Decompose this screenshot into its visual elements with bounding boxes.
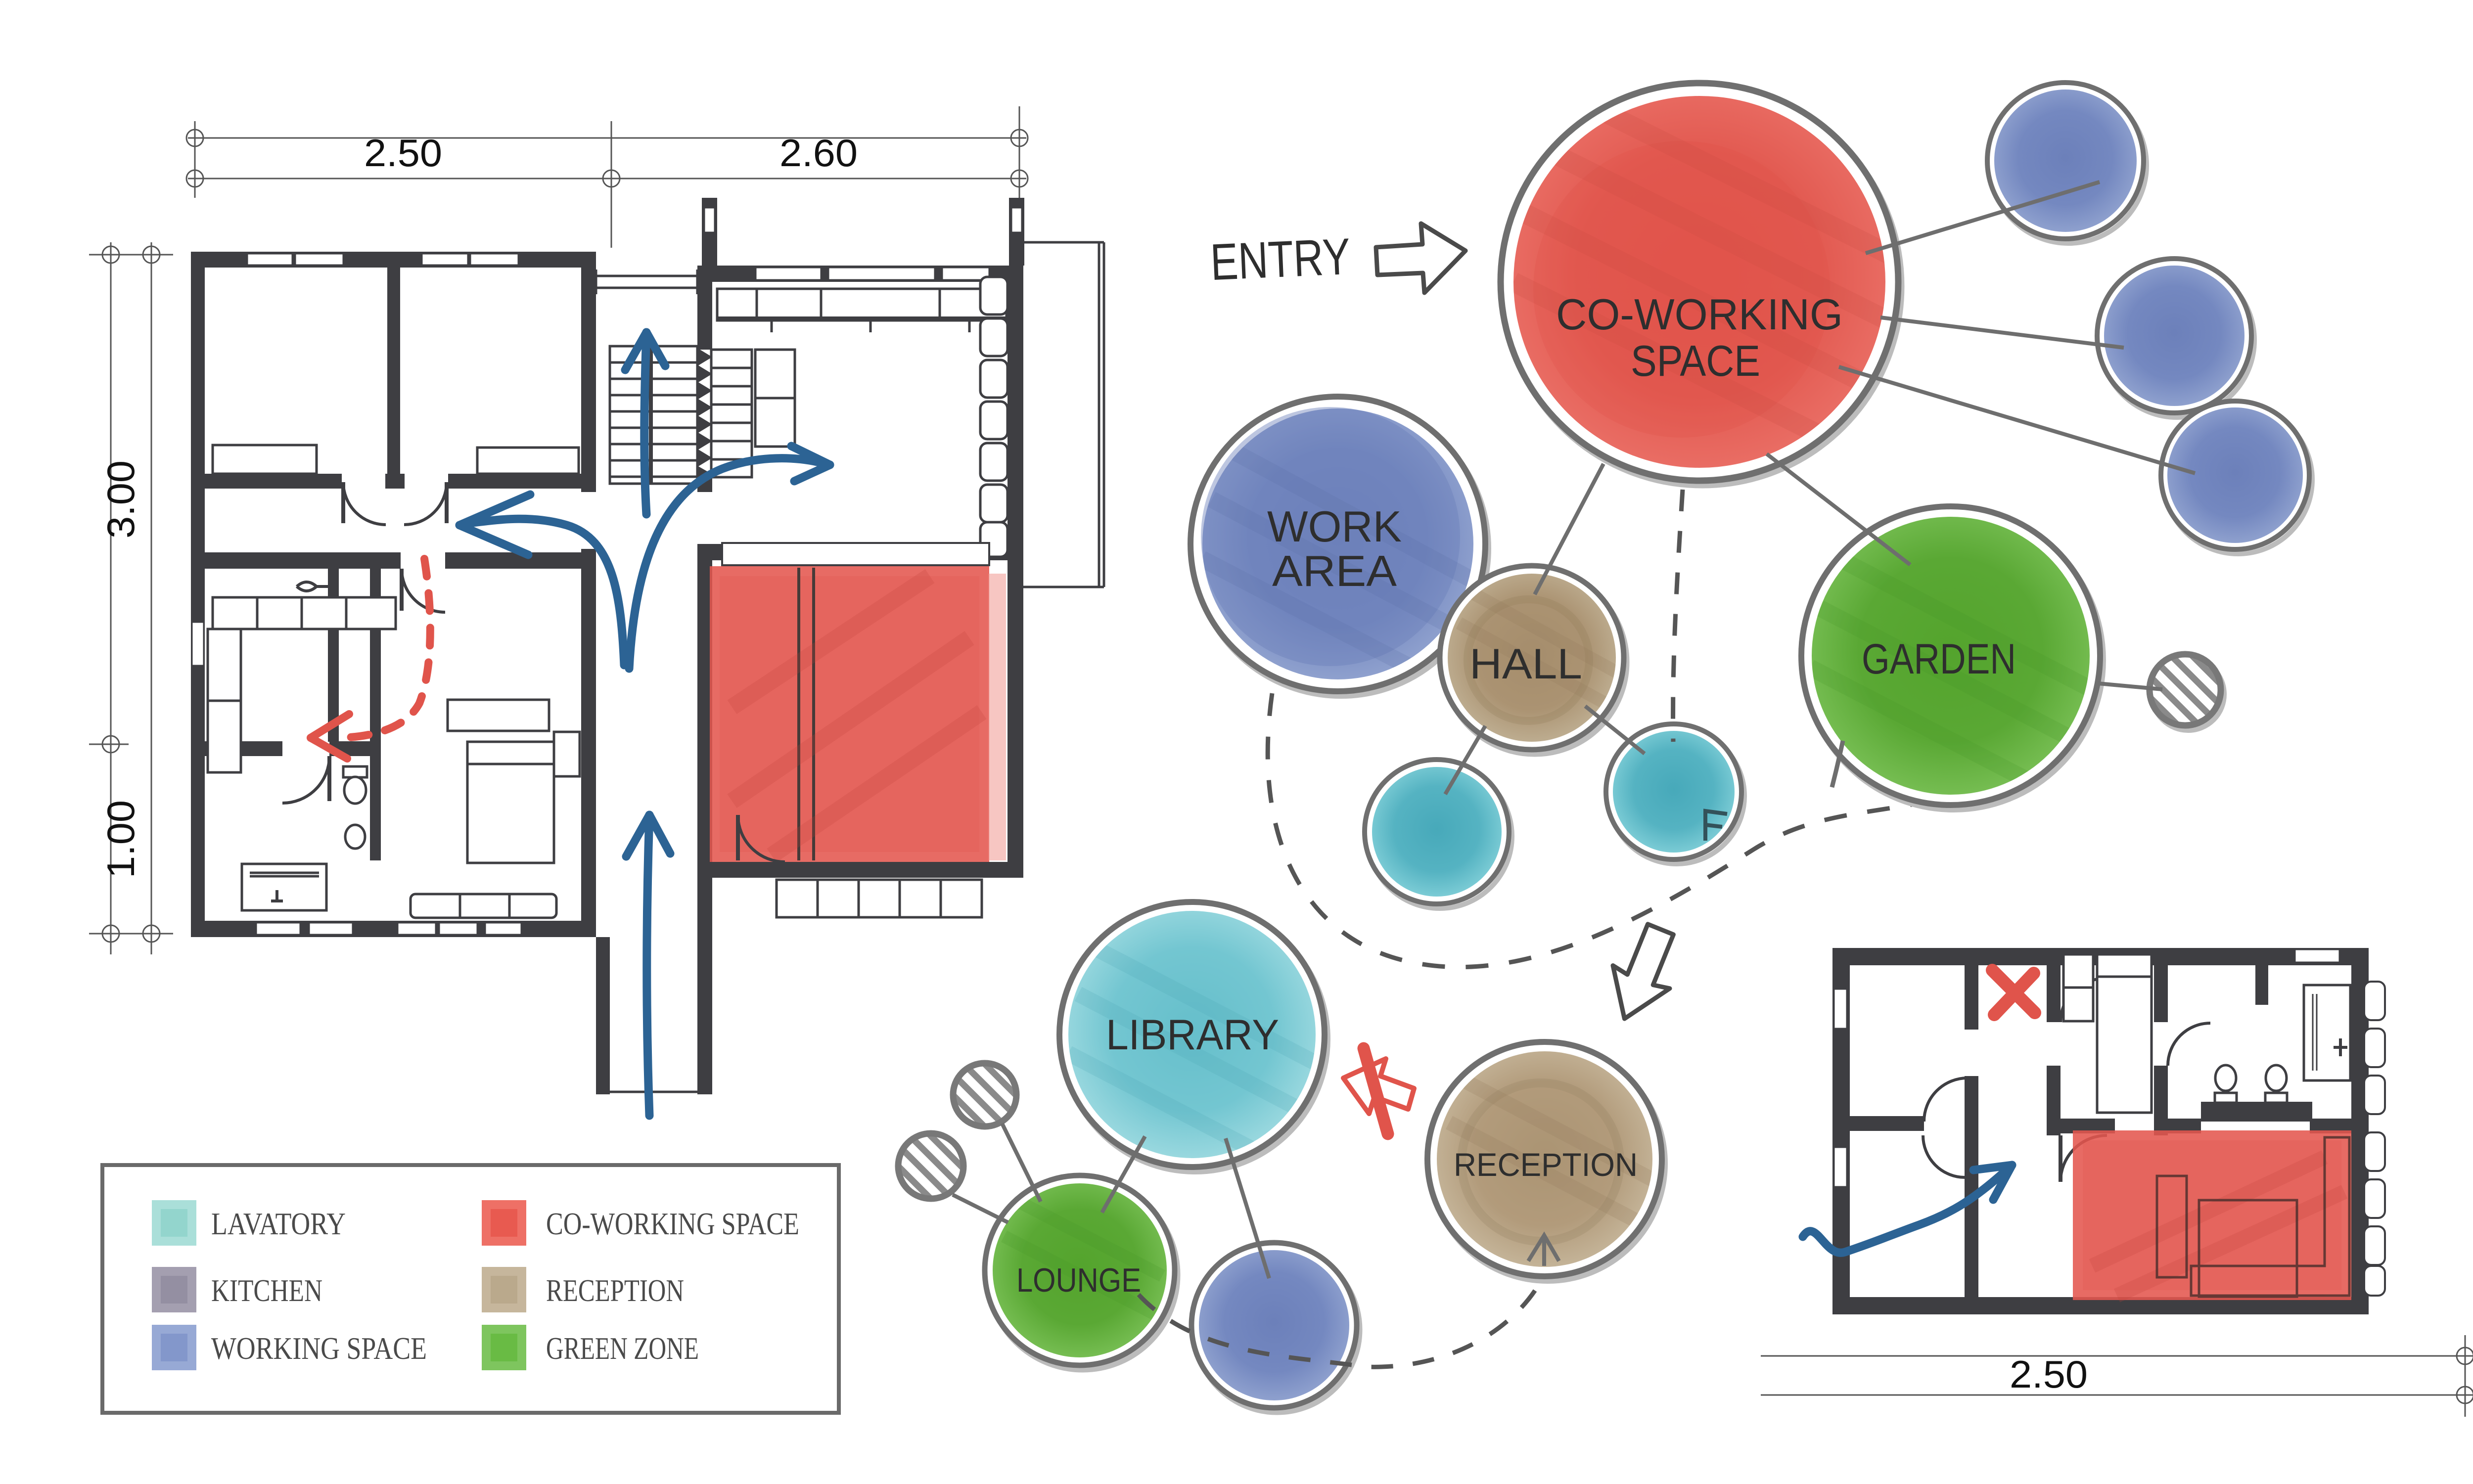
svg-text:CO-WORKING: CO-WORKING: [1556, 290, 1843, 339]
svg-text:3.00: 3.00: [99, 460, 142, 539]
svg-text:ENTRY: ENTRY: [1209, 228, 1352, 291]
svg-text:WORKING SPACE: WORKING SPACE: [211, 1331, 427, 1366]
svg-text:LIBRARY: LIBRARY: [1106, 1011, 1279, 1059]
svg-text:2.50: 2.50: [2010, 1352, 2088, 1396]
svg-text:RECEPTION: RECEPTION: [1454, 1146, 1638, 1183]
svg-text:2.60: 2.60: [779, 131, 858, 175]
svg-text:CO-WORKING SPACE: CO-WORKING SPACE: [546, 1206, 799, 1241]
svg-text:SPACE: SPACE: [1631, 336, 1760, 385]
svg-text:1.00: 1.00: [99, 800, 142, 878]
svg-text:LAVATORY: LAVATORY: [211, 1206, 346, 1241]
svg-text:KITCHEN: KITCHEN: [211, 1273, 322, 1308]
svg-text:GREEN ZONE: GREEN ZONE: [546, 1331, 699, 1366]
svg-text:2.50: 2.50: [364, 131, 442, 175]
svg-text:GARDEN: GARDEN: [1862, 635, 2016, 683]
svg-text:LOUNGE: LOUNGE: [1016, 1261, 1141, 1299]
svg-text:HALL: HALL: [1469, 640, 1582, 688]
svg-text:WORK: WORK: [1267, 502, 1402, 551]
svg-text:RECEPTION: RECEPTION: [546, 1273, 684, 1308]
svg-text:AREA: AREA: [1272, 546, 1397, 595]
